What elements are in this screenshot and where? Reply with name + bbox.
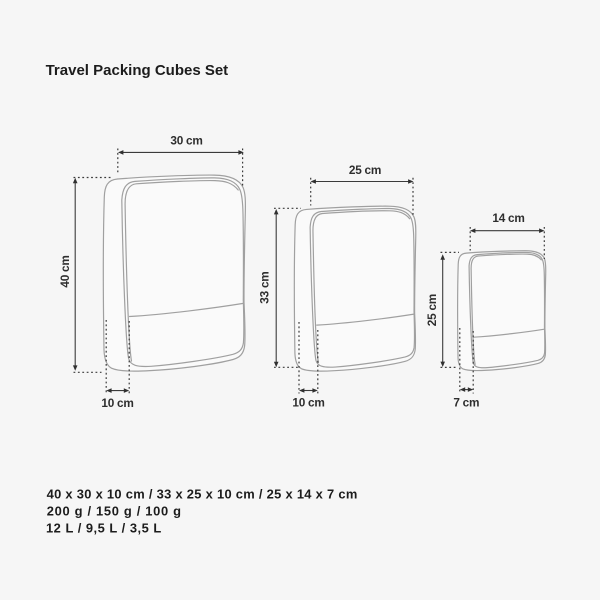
svg-text:25 cm: 25 cm bbox=[425, 294, 439, 326]
svg-text:7 cm: 7 cm bbox=[453, 396, 479, 410]
svg-text:40 cm: 40 cm bbox=[58, 255, 72, 287]
svg-text:10 cm: 10 cm bbox=[292, 396, 324, 410]
svg-text:40 x 30 x 10 cm / 33 x 25 x 10: 40 x 30 x 10 cm / 33 x 25 x 10 cm / 25 x… bbox=[47, 486, 358, 501]
svg-text:30 cm: 30 cm bbox=[170, 134, 202, 148]
svg-text:12 L / 9,5 L / 3,5 L: 12 L / 9,5 L / 3,5 L bbox=[46, 520, 162, 535]
svg-text:200 g / 150 g / 100 g: 200 g / 150 g / 100 g bbox=[47, 504, 182, 519]
svg-text:25 cm: 25 cm bbox=[349, 163, 381, 177]
svg-text:10 cm: 10 cm bbox=[101, 396, 133, 410]
svg-text:33 cm: 33 cm bbox=[257, 271, 271, 303]
svg-text:Travel Packing Cubes Set: Travel Packing Cubes Set bbox=[46, 62, 229, 79]
svg-text:14 cm: 14 cm bbox=[492, 211, 524, 225]
